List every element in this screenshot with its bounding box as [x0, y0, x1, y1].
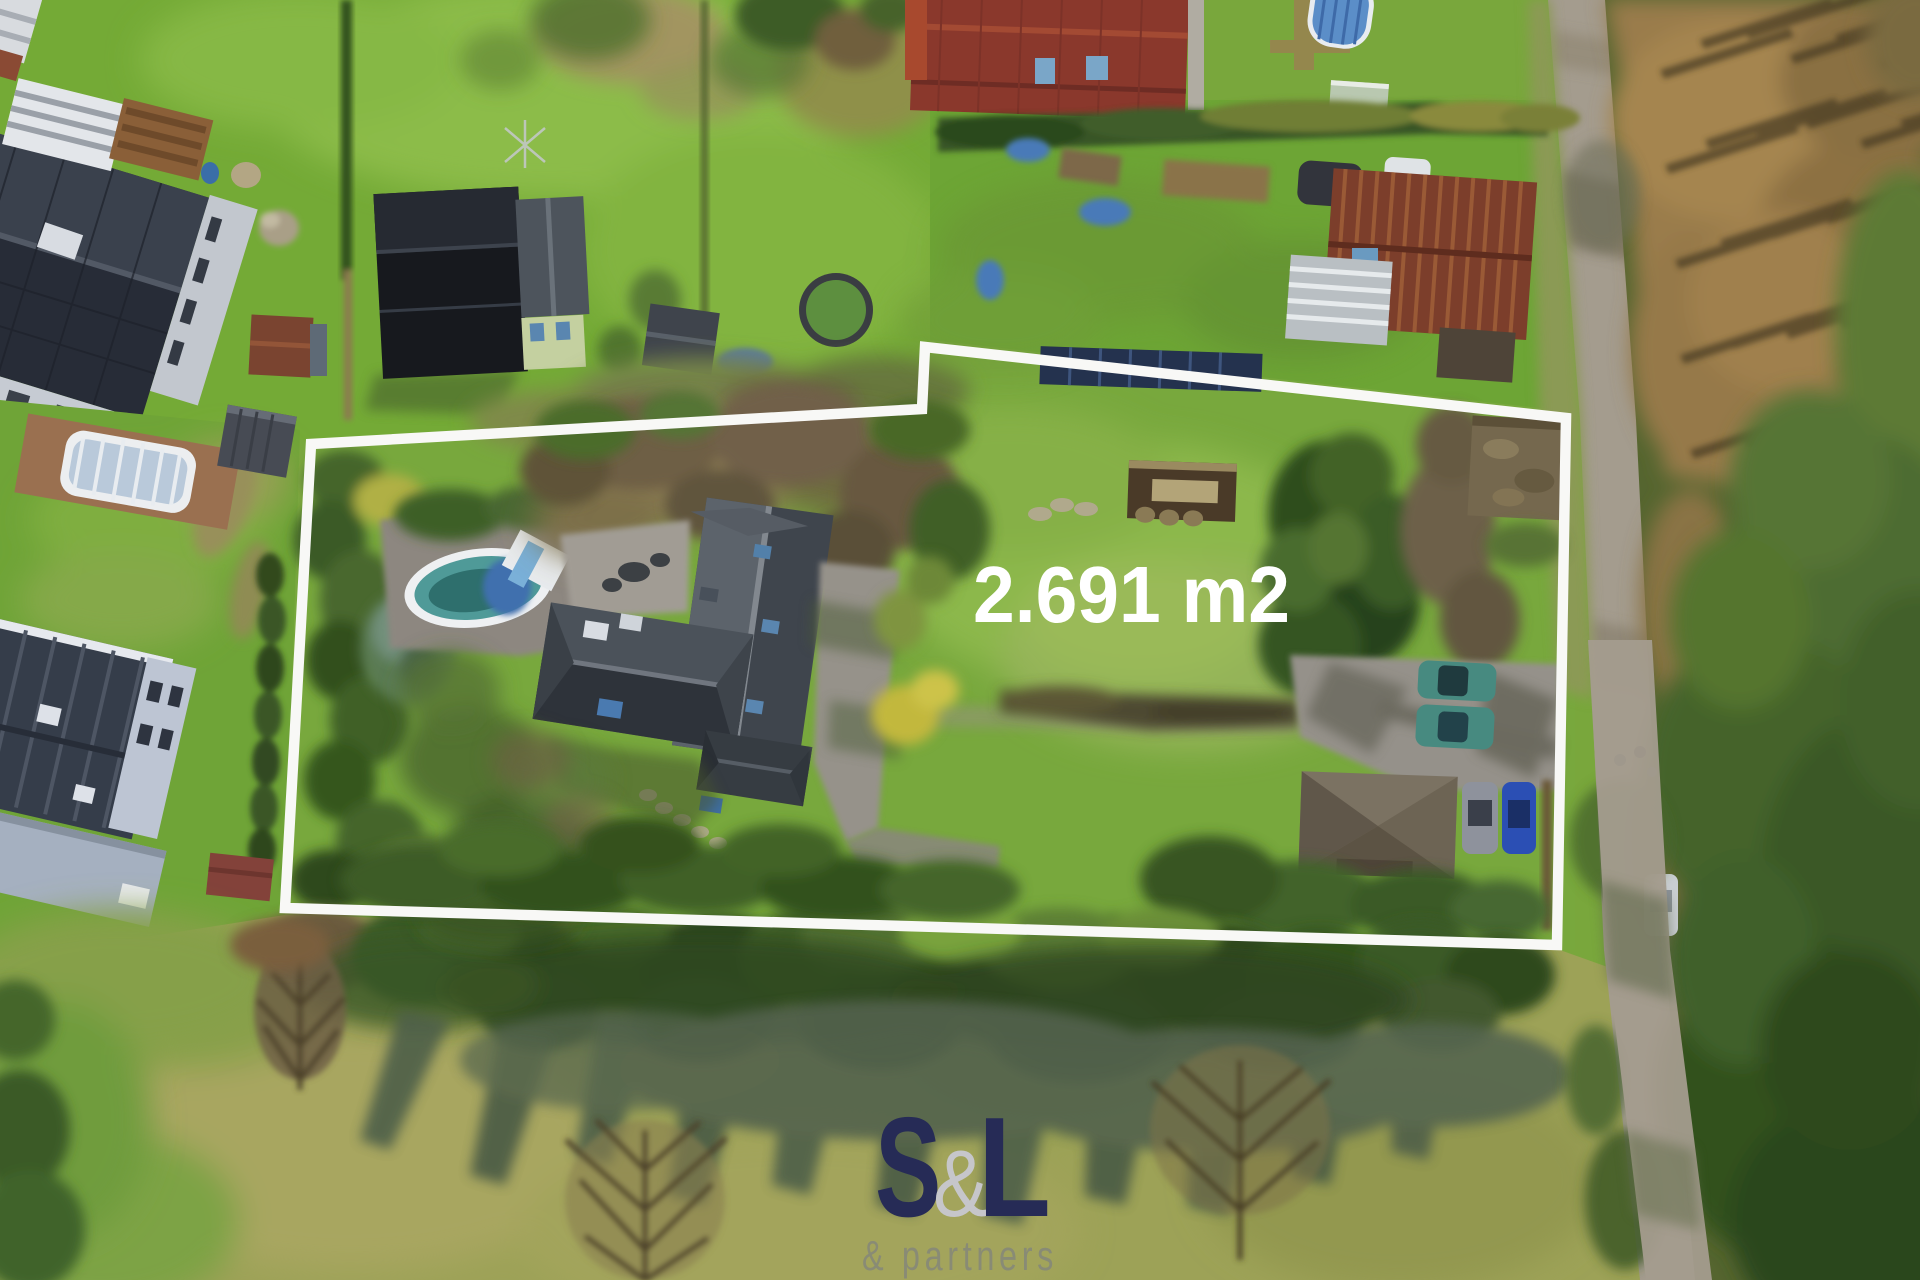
svg-text:S: S	[875, 1087, 941, 1246]
svg-text:L: L	[978, 1087, 1051, 1246]
svg-text:& partners: & partners	[862, 1232, 1058, 1279]
svg-text:2.691 m2: 2.691 m2	[973, 550, 1290, 639]
